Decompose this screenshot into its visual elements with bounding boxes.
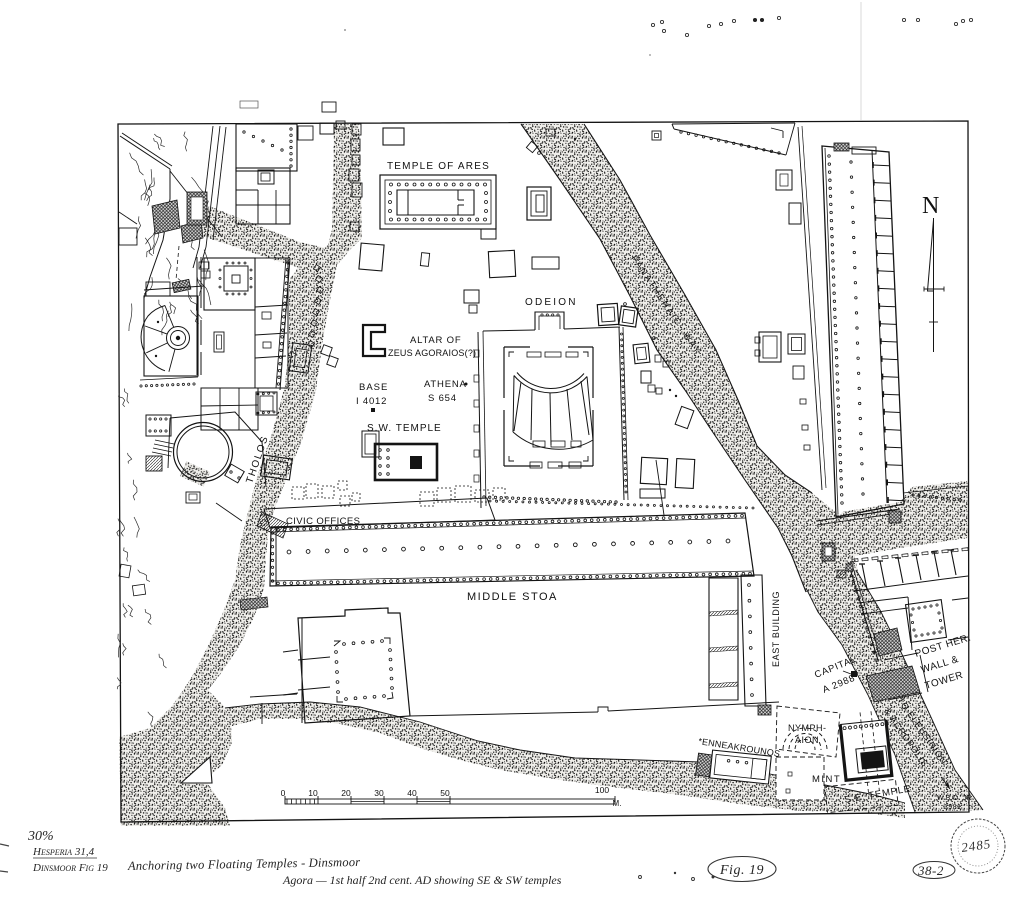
svg-text:Fig. 19: Fig. 19 [719,863,764,878]
svg-text:ODEION: ODEION [525,297,578,308]
svg-text:HESPERIA 31,4: HESPERIA 31,4 [32,846,95,858]
svg-text:10: 10 [308,788,318,798]
svg-text:TEMPLE OF ARES: TEMPLE OF ARES [387,161,490,172]
svg-text:I 4012: I 4012 [356,396,387,407]
svg-text:ALTAR OF: ALTAR OF [410,335,461,346]
svg-text:20: 20 [341,788,351,798]
svg-text:AION: AION [795,735,819,745]
svg-text:30%: 30% [27,829,54,844]
svg-text:ATHENA: ATHENA [424,379,467,390]
svg-text:100: 100 [595,785,609,795]
svg-text:38-2: 38-2 [917,863,944,878]
svg-text:MIDDLE STOA: MIDDLE STOA [467,591,558,603]
svg-text:50: 50 [440,788,450,798]
svg-text:S.W. TEMPLE: S.W. TEMPLE [367,423,442,434]
svg-text:N: N [922,193,939,219]
svg-text:M.: M. [613,799,622,808]
svg-text:30: 30 [374,788,384,798]
svg-text:MINT: MINT [812,774,841,785]
svg-text:S 654: S 654 [428,393,457,404]
svg-text:ZEUS AGORAIOS(?): ZEUS AGORAIOS(?) [388,348,476,358]
svg-text:Agora — 1st half 2nd cent. AD: Agora — 1st half 2nd cent. AD showing SE… [282,873,562,887]
svg-text:BASE: BASE [359,382,388,393]
svg-text:NYMPH-: NYMPH- [788,723,827,733]
svg-text:EAST BUILDING: EAST BUILDING [771,591,781,667]
svg-text:W.B.D. JR: W.B.D. JR [937,795,972,802]
svg-text:40: 40 [407,788,417,798]
svg-text:DINSMOOR FIG 19: DINSMOOR FIG 19 [32,862,108,874]
svg-text:1981: 1981 [944,804,962,811]
